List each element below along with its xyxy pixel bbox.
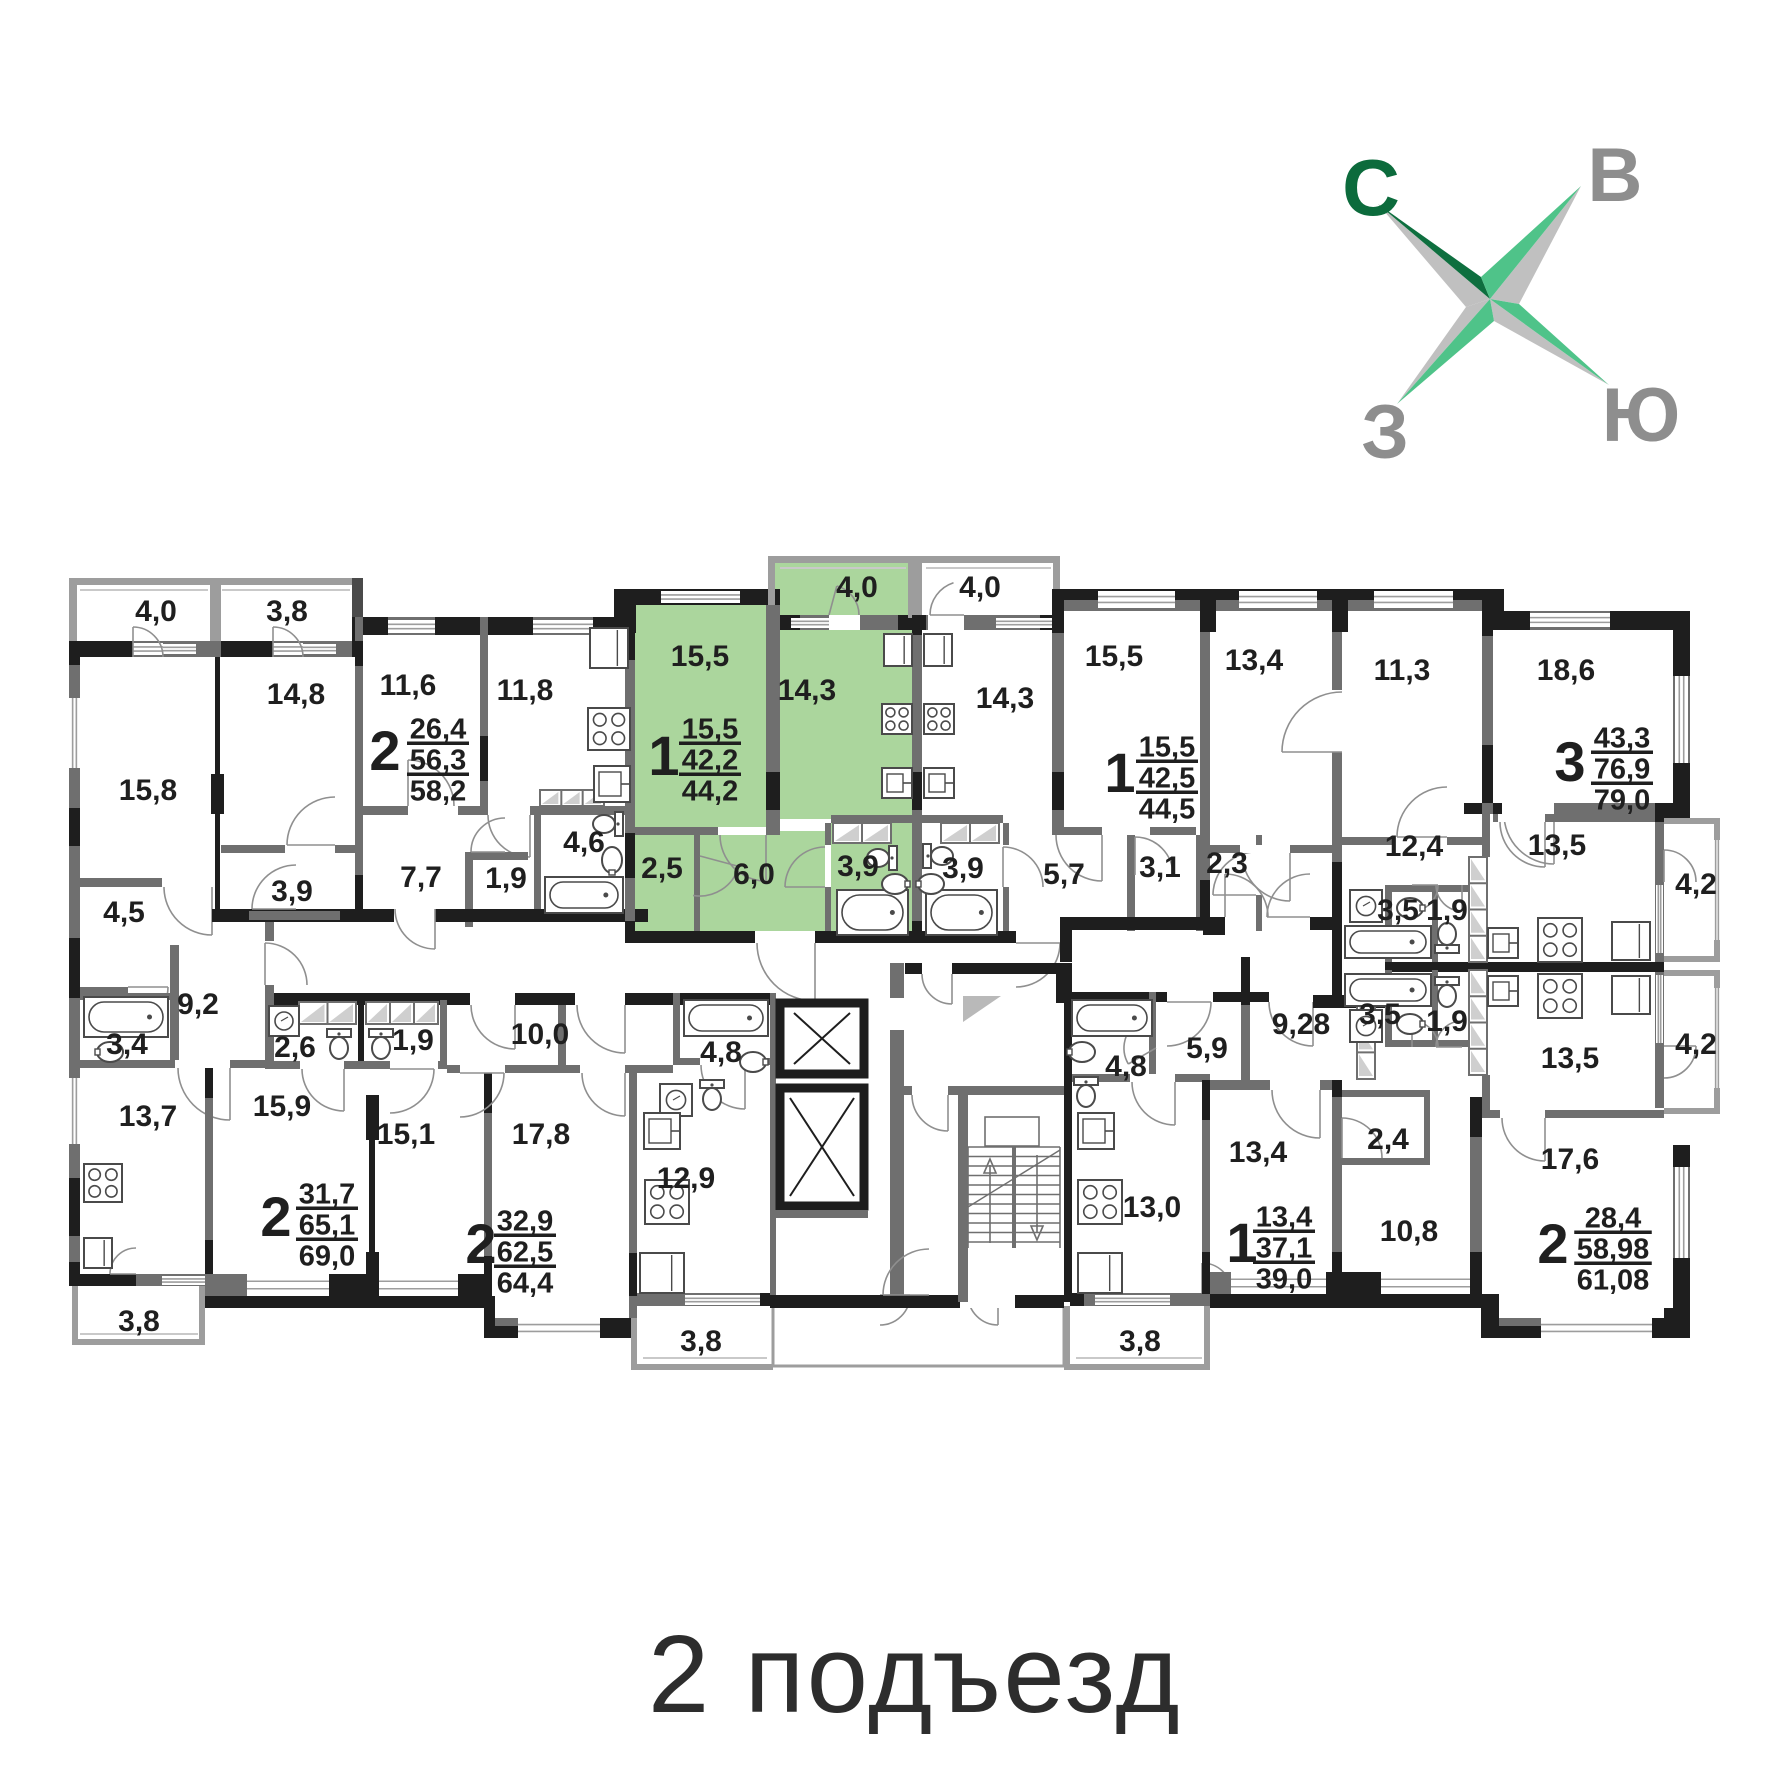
svg-text:5,7: 5,7 [1043,858,1085,891]
svg-text:58,98: 58,98 [1577,1234,1650,1266]
svg-text:15,1: 15,1 [377,1118,435,1151]
svg-text:3,4: 3,4 [106,1028,148,1061]
svg-text:4,0: 4,0 [836,571,878,604]
svg-text:14,8: 14,8 [267,678,325,711]
svg-text:76,9: 76,9 [1594,754,1650,786]
svg-text:14,3: 14,3 [976,682,1034,715]
svg-text:4,8: 4,8 [700,1036,742,1069]
svg-text:39,0: 39,0 [1256,1264,1312,1296]
svg-text:17,8: 17,8 [512,1118,570,1151]
svg-text:4,5: 4,5 [103,896,145,929]
svg-text:18,6: 18,6 [1537,654,1595,687]
svg-text:2,4: 2,4 [1367,1123,1409,1156]
svg-text:1: 1 [1226,1211,1257,1274]
svg-text:4,0: 4,0 [135,595,177,628]
svg-text:37,1: 37,1 [1256,1233,1312,1265]
svg-text:3,8: 3,8 [118,1305,160,1338]
svg-text:2,3: 2,3 [1206,847,1248,880]
svg-text:3,9: 3,9 [942,852,984,885]
svg-text:11,6: 11,6 [380,669,437,702]
svg-text:З: З [1361,390,1409,475]
svg-text:4,8: 4,8 [1105,1050,1147,1083]
svg-text:10,8: 10,8 [1380,1215,1438,1248]
svg-text:43,3: 43,3 [1594,723,1650,755]
svg-text:4,2: 4,2 [1675,868,1717,901]
svg-text:3,8: 3,8 [266,595,308,628]
svg-text:12,4: 12,4 [1385,830,1444,863]
svg-text:9,2: 9,2 [177,988,219,1021]
svg-text:2,5: 2,5 [641,852,683,885]
svg-text:15,5: 15,5 [671,640,729,673]
svg-text:В: В [1588,133,1643,218]
svg-text:3,9: 3,9 [837,850,879,883]
svg-text:2: 2 [369,719,400,782]
svg-text:79,0: 79,0 [1594,785,1650,817]
svg-text:17,6: 17,6 [1541,1143,1599,1176]
svg-text:С: С [1342,143,1400,232]
svg-text:1,9: 1,9 [485,862,527,895]
svg-text:13,5: 13,5 [1528,829,1586,862]
svg-text:Ю: Ю [1602,373,1680,458]
svg-text:2 подъезд: 2 подъезд [648,1613,1182,1736]
svg-text:3: 3 [1554,730,1585,793]
svg-text:13,0: 13,0 [1123,1191,1181,1224]
svg-text:44,5: 44,5 [1139,794,1195,826]
svg-text:10,0: 10,0 [511,1018,569,1051]
svg-text:11,8: 11,8 [497,674,554,707]
svg-text:42,5: 42,5 [1139,763,1195,795]
svg-text:32,9: 32,9 [497,1206,553,1238]
svg-text:15,5: 15,5 [1085,640,1143,673]
svg-text:13,5: 13,5 [1541,1042,1599,1075]
svg-text:9,28: 9,28 [1272,1008,1330,1041]
svg-text:7,7: 7,7 [400,861,442,894]
svg-text:13,4: 13,4 [1225,644,1284,677]
svg-text:3,9: 3,9 [271,875,313,908]
svg-text:62,5: 62,5 [497,1237,553,1269]
svg-text:1,9: 1,9 [1426,894,1468,927]
svg-text:5,9: 5,9 [1186,1032,1228,1065]
svg-text:4,6: 4,6 [563,826,605,859]
svg-text:31,7: 31,7 [299,1179,355,1211]
svg-text:1,9: 1,9 [392,1024,434,1057]
svg-text:4,0: 4,0 [959,571,1001,604]
svg-text:3,8: 3,8 [680,1325,722,1358]
svg-text:2,6: 2,6 [274,1031,316,1064]
svg-text:14,3: 14,3 [778,674,836,707]
svg-text:3,8: 3,8 [1119,1325,1161,1358]
svg-text:15,9: 15,9 [253,1090,311,1123]
svg-text:65,1: 65,1 [299,1210,355,1242]
svg-text:3,5: 3,5 [1359,998,1401,1031]
svg-text:2: 2 [465,1212,496,1275]
svg-text:4,2: 4,2 [1675,1028,1717,1061]
svg-text:2: 2 [1537,1212,1568,1275]
svg-text:3,5: 3,5 [1377,894,1419,927]
svg-text:44,2: 44,2 [682,776,738,808]
svg-text:15,5: 15,5 [1139,732,1195,764]
svg-text:13,7: 13,7 [119,1100,177,1133]
svg-text:13,4: 13,4 [1229,1136,1288,1169]
svg-text:11,3: 11,3 [1374,654,1431,687]
svg-text:3,1: 3,1 [1139,851,1181,884]
svg-text:61,08: 61,08 [1577,1265,1650,1297]
svg-text:1,9: 1,9 [1426,1005,1468,1038]
svg-text:12,9: 12,9 [657,1162,715,1195]
svg-text:28,4: 28,4 [1585,1203,1641,1235]
svg-text:13,4: 13,4 [1256,1202,1312,1234]
svg-text:42,2: 42,2 [682,745,738,777]
svg-text:2: 2 [260,1185,291,1248]
svg-text:15,8: 15,8 [119,774,177,807]
svg-text:69,0: 69,0 [299,1241,355,1273]
svg-text:1: 1 [1104,741,1135,804]
svg-text:26,4: 26,4 [410,714,466,746]
svg-text:6,0: 6,0 [733,858,775,891]
svg-text:15,5: 15,5 [682,714,738,746]
svg-text:64,4: 64,4 [497,1268,553,1300]
svg-text:56,3: 56,3 [410,745,466,777]
svg-text:58,2: 58,2 [410,776,466,808]
svg-text:1: 1 [648,724,679,787]
